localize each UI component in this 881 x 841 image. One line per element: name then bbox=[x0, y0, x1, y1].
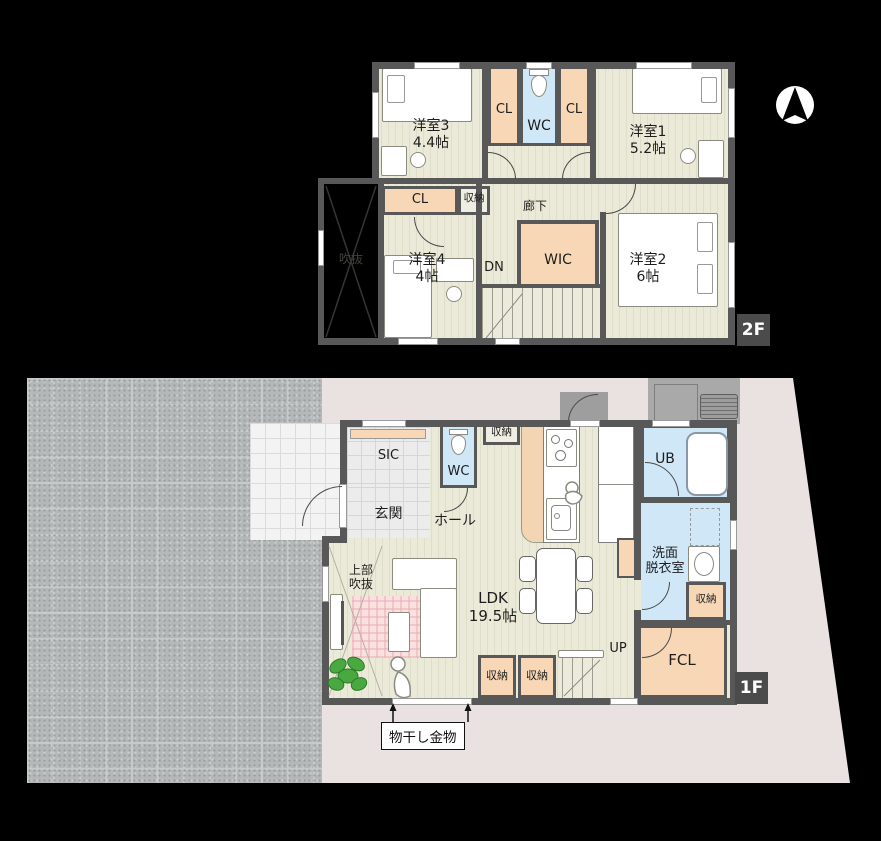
window bbox=[318, 230, 324, 266]
staircase-2f bbox=[482, 284, 600, 338]
washroom-label: 洗面 脱衣室 bbox=[640, 546, 690, 577]
window bbox=[322, 566, 329, 602]
north-arrow-icon bbox=[773, 83, 817, 127]
shunou-wash-label: 収納 bbox=[684, 593, 728, 605]
shunou-a-label: 収納 bbox=[475, 670, 519, 683]
dn-label: DN bbox=[474, 260, 514, 275]
rouka-label: 廊下 bbox=[510, 199, 560, 213]
window bbox=[526, 62, 552, 69]
washroom-label-line2: 脱衣室 bbox=[640, 561, 690, 576]
floor2-badge: 2F bbox=[737, 314, 770, 346]
back-door-arc bbox=[568, 394, 598, 422]
wall bbox=[600, 212, 606, 345]
yoshitsu4-label: 洋室4 4帖 bbox=[392, 252, 462, 285]
burner bbox=[551, 435, 560, 444]
floorplan-canvas: { "compass": {"icon": "north-arrow"}, "c… bbox=[0, 0, 881, 841]
wc-1f-label: WC bbox=[440, 464, 477, 479]
monohoshi-arrows bbox=[380, 702, 480, 724]
window bbox=[495, 338, 520, 345]
window bbox=[372, 92, 379, 138]
room-size: 5.2帖 bbox=[613, 141, 683, 158]
joubu-line1: 上部 bbox=[334, 563, 388, 577]
bed bbox=[382, 68, 472, 122]
window bbox=[636, 62, 692, 69]
room-size: 6帖 bbox=[613, 269, 683, 286]
ldk-label: LDK 19.5帖 bbox=[460, 590, 526, 625]
wall bbox=[730, 420, 737, 705]
toilet bbox=[451, 435, 466, 455]
bed bbox=[632, 68, 722, 114]
kitchen-counter-bench bbox=[521, 425, 544, 543]
window bbox=[728, 242, 735, 308]
hall-label: ホール bbox=[420, 513, 490, 530]
ac-outdoor-unit bbox=[700, 394, 738, 419]
sofa bbox=[392, 558, 457, 590]
window bbox=[398, 338, 438, 345]
room-name: 洋室2 bbox=[613, 252, 683, 269]
pillow bbox=[701, 77, 717, 103]
window bbox=[728, 88, 735, 138]
wall bbox=[318, 178, 735, 184]
yoshitsu1-label: 洋室1 5.2帖 bbox=[613, 124, 683, 157]
genkan-label: 玄関 bbox=[347, 506, 430, 523]
wall bbox=[634, 620, 737, 625]
wc-2f-label: WC bbox=[520, 118, 558, 135]
ldk-size: 19.5帖 bbox=[460, 608, 526, 626]
equipment-square bbox=[654, 384, 698, 421]
shunou-b-label: 収納 bbox=[515, 670, 559, 683]
wic-label: WIC bbox=[517, 252, 599, 269]
wall bbox=[634, 498, 737, 503]
room-name: 洋室1 bbox=[613, 124, 683, 141]
void-label: 吹抜 bbox=[330, 252, 372, 266]
floor1-badge: 1F bbox=[735, 672, 768, 704]
room-size: 4帖 bbox=[392, 269, 462, 286]
basin-bowl bbox=[694, 552, 714, 576]
window bbox=[414, 62, 460, 69]
tv bbox=[341, 601, 344, 645]
desk-chair bbox=[410, 152, 426, 168]
back-door-opening bbox=[570, 420, 600, 427]
ub-label: UB bbox=[644, 451, 686, 468]
burner bbox=[555, 450, 566, 461]
washing-machine bbox=[690, 508, 720, 546]
floor1-plan: SIC 玄関 ホール WC 収納 UB 洗面 脱衣室 bbox=[322, 420, 737, 705]
window bbox=[652, 420, 690, 427]
shunou-hall-label: 収納 bbox=[480, 426, 523, 438]
yoshitsu2-label: 洋室2 6帖 bbox=[613, 252, 683, 285]
wall bbox=[340, 420, 347, 486]
window bbox=[362, 420, 406, 427]
coffee-table bbox=[388, 612, 410, 652]
room-size: 4.4帖 bbox=[396, 135, 466, 152]
window bbox=[730, 520, 737, 550]
washroom-label-line1: 洗面 bbox=[640, 546, 690, 561]
sofa bbox=[420, 588, 457, 658]
wall bbox=[318, 338, 735, 345]
ldk-name: LDK bbox=[460, 590, 526, 608]
sic-label: SIC bbox=[347, 448, 430, 463]
toilet-tank bbox=[449, 429, 468, 435]
bathtub bbox=[686, 432, 728, 496]
joubu-line2: 吹抜 bbox=[334, 577, 388, 591]
pantry-fridge-cabinet bbox=[598, 425, 634, 543]
stove bbox=[546, 429, 577, 467]
equipment-pad bbox=[648, 378, 740, 424]
wall bbox=[590, 62, 596, 178]
dining-chair bbox=[576, 588, 593, 614]
yoshitsu3-label: 洋室3 4.4帖 bbox=[396, 118, 466, 151]
wall bbox=[322, 536, 329, 705]
monohoshi-callout: 物干し金物 bbox=[381, 722, 465, 750]
desk bbox=[698, 140, 724, 178]
pillow bbox=[697, 264, 713, 294]
dining-table bbox=[536, 548, 576, 624]
pillow bbox=[697, 222, 713, 252]
void-fukinuke: 吹抜 bbox=[318, 178, 384, 345]
burner bbox=[564, 439, 573, 448]
room-name: 洋室4 bbox=[392, 252, 462, 269]
desk-chair bbox=[446, 286, 462, 302]
cl-left-label: CL bbox=[488, 102, 520, 117]
tv-board bbox=[330, 594, 343, 650]
floor2-plan: 吹抜 CL WC CL CL 収納 廊下 WIC DN 洋室3 4.4帖 洋室1… bbox=[318, 62, 735, 345]
fcl-label: FCL bbox=[637, 652, 727, 670]
kitchen-sink bbox=[546, 498, 577, 540]
washbasin bbox=[688, 546, 720, 582]
sink-drain bbox=[554, 513, 560, 519]
cl-right-label: CL bbox=[558, 102, 590, 117]
shunou-2f-label: 収納 bbox=[456, 192, 492, 204]
toilet-tank bbox=[529, 69, 549, 76]
cl-mid-label: CL bbox=[382, 192, 458, 207]
stair-landing bbox=[558, 650, 604, 658]
dining-chair bbox=[519, 556, 536, 582]
dining-chair bbox=[576, 556, 593, 582]
staircase-1f bbox=[562, 658, 602, 698]
room-name: 洋室3 bbox=[396, 118, 466, 135]
toilet bbox=[531, 75, 547, 97]
pillow bbox=[387, 75, 405, 103]
sic-shelf bbox=[350, 429, 426, 439]
door-opening bbox=[610, 698, 638, 705]
joubu-fukinuke-label: 上部 吹抜 bbox=[334, 563, 388, 591]
up-label: UP bbox=[600, 641, 636, 656]
